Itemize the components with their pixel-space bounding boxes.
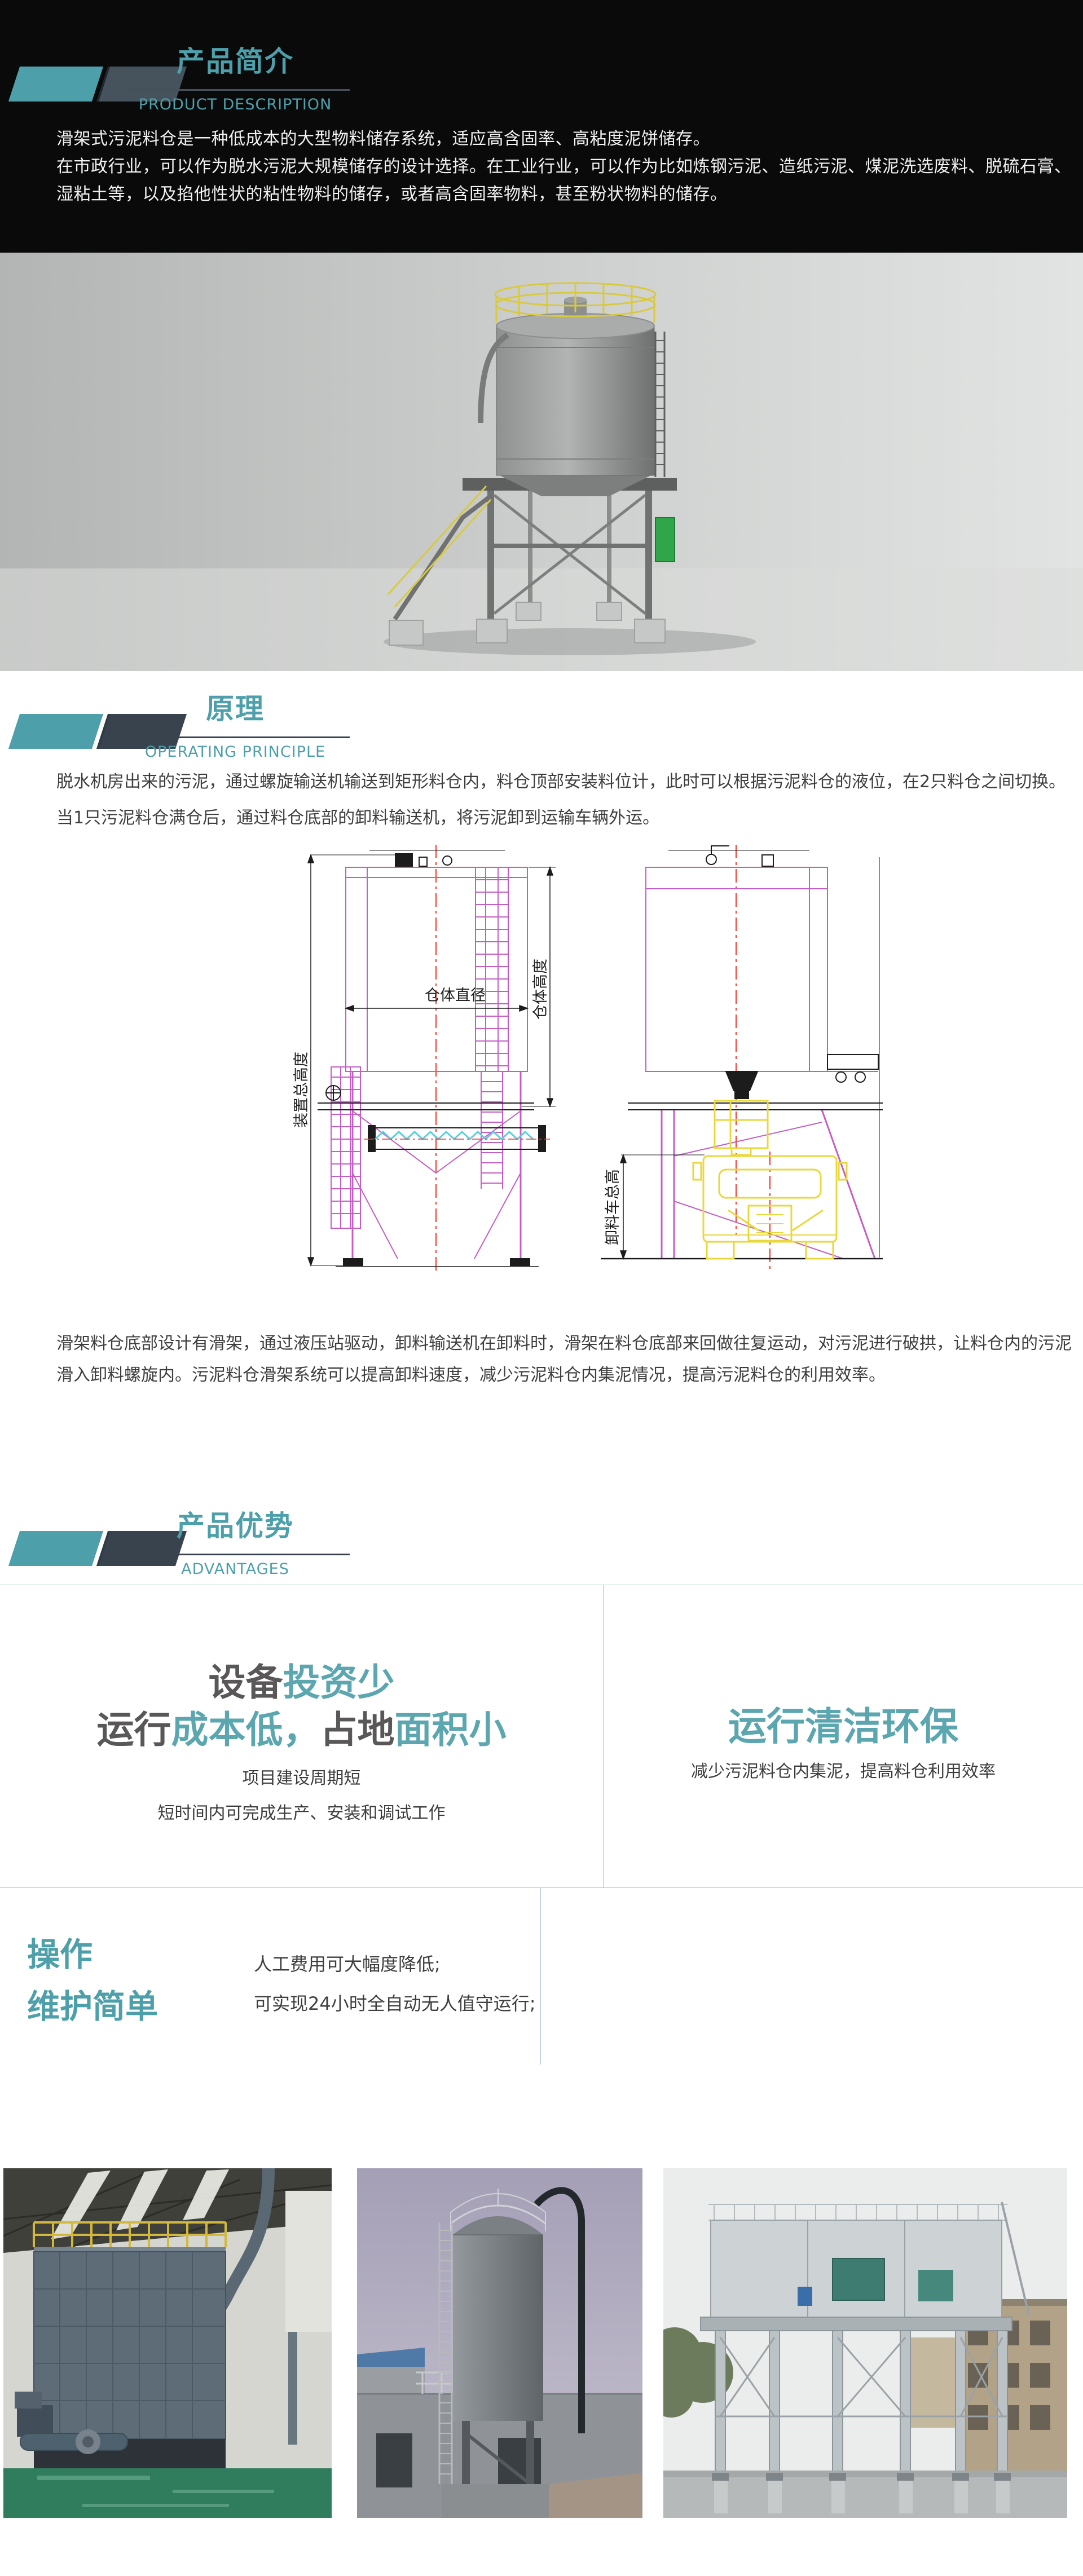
headline-segment: 占地 bbox=[320, 1708, 395, 1752]
label-silo-diameter: 仓体直径 bbox=[425, 987, 486, 1004]
vertical-divider bbox=[540, 1888, 541, 2065]
principle-title: 原理 bbox=[121, 691, 350, 726]
principle-line: 当1只污泥料仓满仓后，通过料仓底部的卸料输送机，将污泥卸到运输车辆外运。 bbox=[56, 800, 1083, 836]
reference-photos-row bbox=[0, 2168, 1083, 2518]
principle-section: 原理 OPERATING PRINCIPLE 脱水机房出来的污泥，通过螺旋输送机… bbox=[0, 691, 1083, 1391]
advantage-headline: 运行成本低，占地面积小 bbox=[0, 1706, 603, 1754]
headline-segment: 投资少 bbox=[283, 1661, 395, 1704]
intro-line: 湿粘土等，以及掐他性状的粘性物料的储存，或者高含固率物料，甚至粉状物料的储存。 bbox=[56, 180, 1072, 208]
indoor-silo-installation-photo bbox=[3, 2168, 332, 2518]
silo-render-illustration bbox=[0, 253, 1083, 671]
hydraulic-unit bbox=[715, 1101, 768, 1155]
intro-paragraph: 滑架式污泥料仓是一种低成本的大型物料储存系统，适应高含固率、高粘度泥饼储存。 在… bbox=[56, 125, 1072, 208]
header-underline bbox=[121, 89, 350, 91]
principle-line: 滑架料仓底部设计有滑架，通过液压站驱动，卸料输送机在卸料时，滑架在料仓底部来回做… bbox=[56, 1328, 1083, 1360]
floor-shadow bbox=[384, 628, 756, 655]
advantages-section: 产品优势 ADVANTAGES 设备投资少 运行成本低，占地面积小 项目建设周期… bbox=[0, 1508, 1083, 1888]
advantages-header: 产品优势 ADVANTAGES bbox=[0, 1508, 1083, 1577]
operation-section: 操作 维护简单 人工费用可大幅度降低; 可实现24小时全自动无人值守运行; bbox=[0, 1888, 1083, 2136]
screw-conveyor bbox=[364, 1132, 550, 1139]
advantage-cell-cost: 设备投资少 运行成本低，占地面积小 项目建设周期短 短时间内可完成生产、安装和调… bbox=[0, 1585, 604, 1887]
intro-line: 滑架式污泥料仓是一种低成本的大型物料储存系统，适应高含固率、高粘度泥饼储存。 bbox=[56, 125, 1072, 153]
operation-point: 人工费用可大幅度降低; bbox=[254, 1944, 536, 1984]
advantage-headline: 设备投资少 bbox=[0, 1659, 603, 1706]
cad-drawing-figure: 仓体直径 装置总高度 仓体高度 卸料车总高 bbox=[285, 840, 883, 1303]
principle-subtitle: OPERATING PRINCIPLE bbox=[76, 743, 395, 761]
advantage-cell-clean: 运行清洁环保 减少污泥料仓内集泥，提高料仓利用效率 bbox=[604, 1585, 1083, 1887]
principle-paragraph-2: 滑架料仓底部设计有滑架，通过液压站驱动，卸料输送机在卸料时，滑架在料仓底部来回做… bbox=[56, 1328, 1083, 1391]
silo-cad-drawing: 仓体直径 装置总高度 仓体高度 卸料车总高 bbox=[285, 840, 883, 1303]
advantages-subtitle: ADVANTAGES bbox=[76, 1560, 395, 1578]
advantage-subtext: 项目建设周期短 bbox=[0, 1768, 603, 1789]
intro-line: 在市政行业，可以作为脱水污泥大规模储存的设计选择。在工业行业，可以作为比如炼钢污… bbox=[56, 153, 1072, 180]
steel-structure-silo-plant-photo bbox=[663, 2168, 1067, 2518]
operation-points: 人工费用可大幅度降低; 可实现24小时全自动无人值守运行; bbox=[254, 1944, 536, 2023]
dust-collector-box bbox=[34, 2247, 226, 2439]
intro-header: 产品简介 PRODUCT DESCRIPTION bbox=[0, 44, 1083, 113]
advantage-subtext: 减少污泥料仓内集泥，提高料仓利用效率 bbox=[604, 1762, 1083, 1782]
operation-title-line: 维护简单 bbox=[27, 1980, 158, 2032]
headline-segment: 设备 bbox=[209, 1661, 283, 1704]
label-truck-height: 卸料车总高 bbox=[604, 1169, 622, 1245]
headline-segment: 面积小 bbox=[395, 1708, 507, 1752]
principle-line: 滑入卸料螺旋内。污泥料仓滑架系统可以提高卸料速度，减少污泥料仓内集泥情况，提高污… bbox=[56, 1360, 1083, 1391]
label-total-height: 装置总高度 bbox=[293, 1052, 310, 1128]
intro-title: 产品简介 bbox=[121, 44, 350, 79]
headline-segment: 运行 bbox=[97, 1708, 171, 1752]
green-control-cabinet bbox=[655, 518, 675, 562]
cad-black-details bbox=[318, 846, 883, 1267]
advantages-table: 设备投资少 运行成本低，占地面积小 项目建设周期短 短时间内可完成生产、安装和调… bbox=[0, 1585, 1083, 1888]
side-view-silo bbox=[646, 867, 878, 1259]
intro-subtitle: PRODUCT DESCRIPTION bbox=[76, 96, 395, 113]
intro-section: 产品简介 PRODUCT DESCRIPTION 滑架式污泥料仓是一种低成本的大… bbox=[0, 0, 1083, 253]
principle-header: 原理 OPERATING PRINCIPLE bbox=[0, 691, 1083, 760]
header-underline bbox=[121, 736, 350, 738]
operation-title-line: 操作 bbox=[27, 1929, 158, 1980]
operation-title: 操作 维护简单 bbox=[27, 1929, 158, 2032]
front-view-silo bbox=[331, 867, 527, 1259]
advantage-headline: 运行清洁环保 bbox=[604, 1705, 1083, 1750]
advantages-title: 产品优势 bbox=[121, 1508, 350, 1543]
header-underline bbox=[121, 1554, 350, 1555]
outdoor-silo-tower-photo bbox=[357, 2168, 642, 2518]
label-body-height: 仓体高度 bbox=[532, 959, 549, 1020]
principle-paragraph-1: 脱水机房出来的污泥，通过螺旋输送机输送到矩形料仓内，料仓顶部安装料位计，此时可以… bbox=[56, 764, 1083, 836]
advantage-subtext: 短时间内可完成生产、安装和调试工作 bbox=[0, 1803, 603, 1824]
product-render-figure bbox=[0, 253, 1083, 671]
operation-point: 可实现24小时全自动无人值守运行; bbox=[254, 1984, 536, 2023]
principle-line: 脱水机房出来的污泥，通过螺旋输送机输送到矩形料仓内，料仓顶部安装料位计，此时可以… bbox=[56, 764, 1083, 800]
headline-segment: 成本低， bbox=[171, 1708, 320, 1752]
